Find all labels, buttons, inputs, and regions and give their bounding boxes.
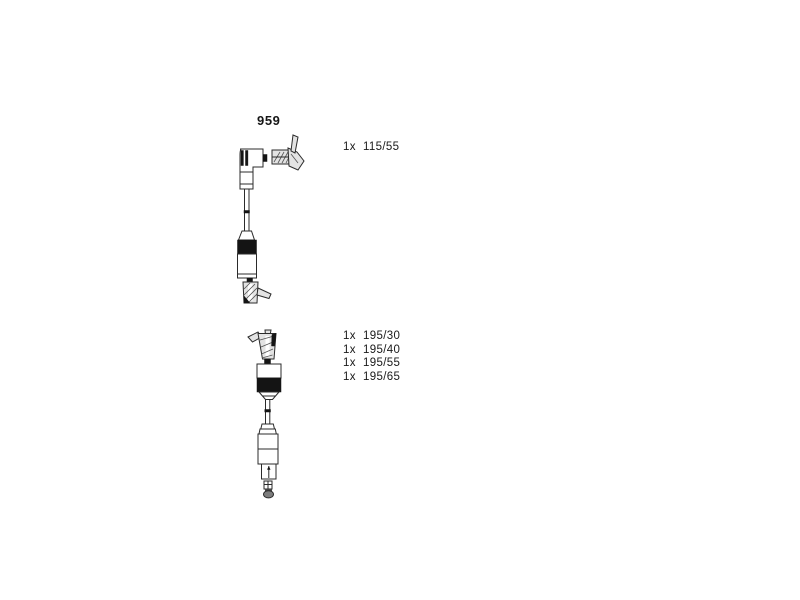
angled-boot [240,149,267,189]
length-spec-label: 115/55 [363,141,399,155]
cable-lead [244,189,250,232]
ignition-cable-angled-illustration [225,128,310,308]
quantity-label: 1x [343,330,363,344]
plug-boot-segmented [258,424,278,479]
quantity-label: 1x [343,357,363,371]
end-terminal [264,481,274,498]
length-spec-label: 195/40 [363,344,400,358]
distributor-boot [257,364,281,400]
terminal-clip [243,278,271,303]
connector-terminal [272,135,304,170]
part-number-label: 959 [257,113,281,128]
length-spec-label: 195/55 [363,357,400,371]
length-spec-label: 195/30 [363,330,400,344]
ignition-cable-straight-illustration [245,328,305,500]
spec-row: 1x 195/55 [343,357,400,371]
quantity-label: 1x [343,141,363,155]
spec-row: 1x 195/40 [343,344,400,358]
terminal-clip-top [248,330,276,364]
length-spec-label: 195/65 [363,371,400,385]
spec-list-angled: 1x 115/55 [343,141,399,155]
spec-row: 1x 195/30 [343,330,400,344]
spec-row: 1x 195/65 [343,371,400,385]
catalog-page: 959 [0,0,800,600]
quantity-label: 1x [343,371,363,385]
spec-row: 1x 115/55 [343,141,399,155]
cable-lead [265,400,271,425]
plug-boot [238,231,257,278]
quantity-label: 1x [343,344,363,358]
spec-list-straight: 1x 195/30 1x 195/40 1x 195/55 1x 195/65 [343,330,400,384]
